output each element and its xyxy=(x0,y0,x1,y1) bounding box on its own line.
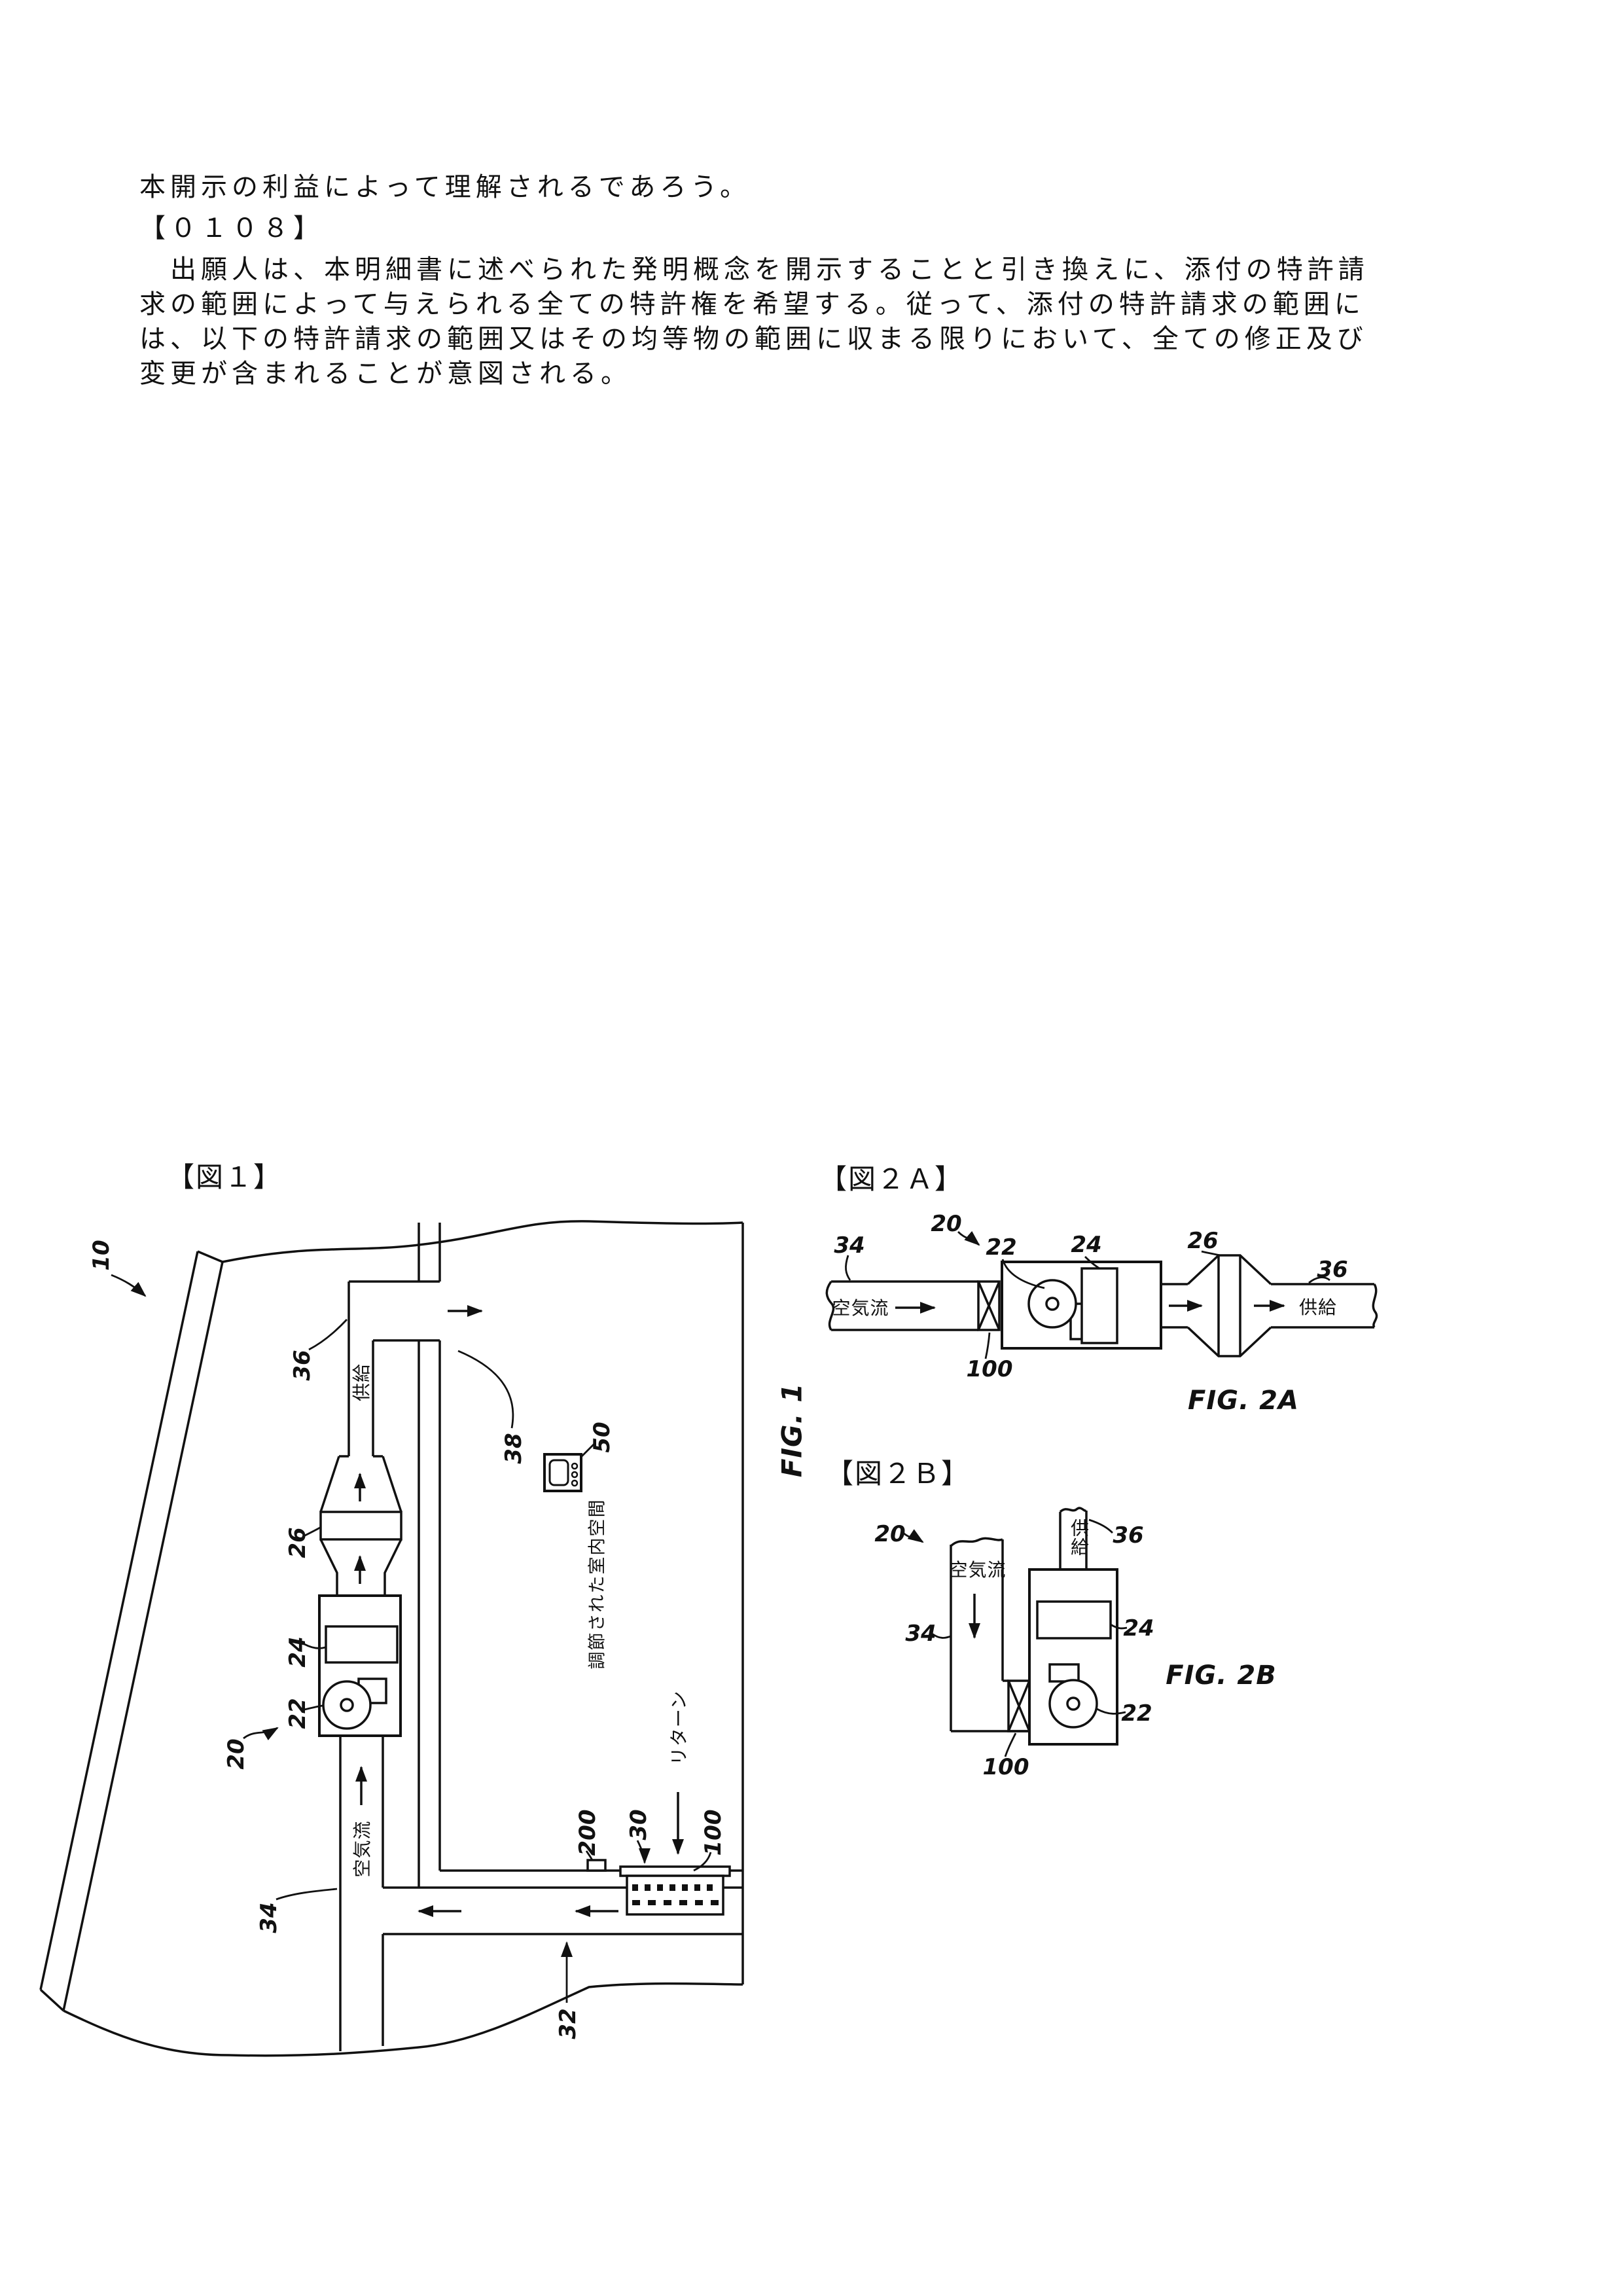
fig1-thermostat xyxy=(544,1454,581,1491)
fig2a-diffuser xyxy=(1161,1255,1284,1356)
fig2b-ref-22: 22 xyxy=(1121,1700,1152,1727)
fig2a-ref-34: 34 xyxy=(834,1232,865,1259)
fig1-ref-10: 10 xyxy=(88,1240,115,1270)
fig1-ref-22: 22 xyxy=(285,1698,311,1729)
fig2a-caption: FIG. 2A xyxy=(1188,1386,1299,1416)
fig1-interior-wall xyxy=(419,1223,440,1888)
fig2a-supply-label: 供給 xyxy=(1299,1293,1337,1319)
fig1-hvac-unit xyxy=(319,1596,401,1736)
paragraph-line: 求の範囲によって与えられる全ての特許権を希望する。従って、添付の特許請求の範囲に xyxy=(139,283,1365,321)
fig2b-damper xyxy=(1003,1681,1029,1731)
fig1-leader-lines xyxy=(111,1275,711,2003)
fig2a-ref-26: 26 xyxy=(1187,1228,1218,1254)
fig1-ref-34: 34 xyxy=(256,1902,282,1933)
paragraph-line: 変更が含まれることが意図される。 xyxy=(139,352,632,390)
paragraph-number: 【０１０８】 xyxy=(139,207,324,245)
fig2b-ref-34: 34 xyxy=(905,1621,936,1647)
fig2b-supply-label: 供給 xyxy=(1065,1518,1091,1556)
fig1-return-grille xyxy=(620,1867,730,1914)
fig2b-ref-100: 100 xyxy=(983,1754,1029,1780)
fig2b-ref-24: 24 xyxy=(1123,1615,1154,1641)
fig1-ref-24: 24 xyxy=(285,1636,311,1667)
fig1-diffuser xyxy=(321,1456,401,1596)
fig2a-ref-24: 24 xyxy=(1071,1232,1101,1258)
fig1-ref-36: 36 xyxy=(289,1350,315,1380)
fig2a-airflow-label: 空気流 xyxy=(832,1294,889,1320)
fig1-airflow-label: 空気流 xyxy=(348,1820,374,1877)
fig1-ref-200: 200 xyxy=(575,1810,601,1856)
fig1-ref-30: 30 xyxy=(626,1809,652,1840)
paragraph-line: 本開示の利益によって理解されるであろう。 xyxy=(139,166,751,204)
fig2b-ref-20: 20 xyxy=(874,1521,905,1547)
paragraph-line: は、以下の特許請求の範囲又はその均等物の範囲に収まる限りにおいて、全ての修正及び xyxy=(139,317,1368,355)
fig2b-hvac-unit xyxy=(1029,1570,1117,1744)
patent-document-page: 本開示の利益によって理解されるであろう。 【０１０８】 出願人は、本明細書に述べ… xyxy=(0,0,1623,2296)
fig2a-ref-20: 20 xyxy=(931,1211,961,1237)
fig1-return-label: リターン xyxy=(665,1691,691,1766)
fig1-drawing xyxy=(0,1139,825,2075)
fig1-sensor-box xyxy=(588,1860,605,1871)
paragraph-line: 出願人は、本明細書に述べられた発明概念を開示することと引き換えに、添付の特許請 xyxy=(139,248,1369,286)
fig2b-caption: FIG. 2B xyxy=(1166,1660,1276,1691)
fig1-ref-50: 50 xyxy=(589,1422,615,1452)
fig1-ref-26: 26 xyxy=(285,1527,311,1558)
fig2a-ref-36: 36 xyxy=(1317,1257,1347,1283)
fig1-ref-100: 100 xyxy=(700,1810,726,1856)
fig2a-ref-22: 22 xyxy=(986,1234,1016,1261)
fig1-ref-38: 38 xyxy=(501,1433,527,1463)
fig1-ref-20: 20 xyxy=(223,1738,249,1769)
fig2a-hvac-unit xyxy=(1002,1262,1161,1348)
fig1-ref-32: 32 xyxy=(555,2008,581,2039)
fig2b-airflow-label: 空気流 xyxy=(949,1556,1006,1582)
fig1-caption: FIG. 1 xyxy=(776,1383,808,1478)
fig2a-damper xyxy=(978,1282,999,1330)
fig2b-ref-36: 36 xyxy=(1113,1522,1143,1549)
fig2a-ref-100: 100 xyxy=(967,1356,1013,1382)
fig1-room-label: 調節された室内空間 xyxy=(583,1499,609,1670)
fig1-supply-label: 供給 xyxy=(348,1363,374,1401)
